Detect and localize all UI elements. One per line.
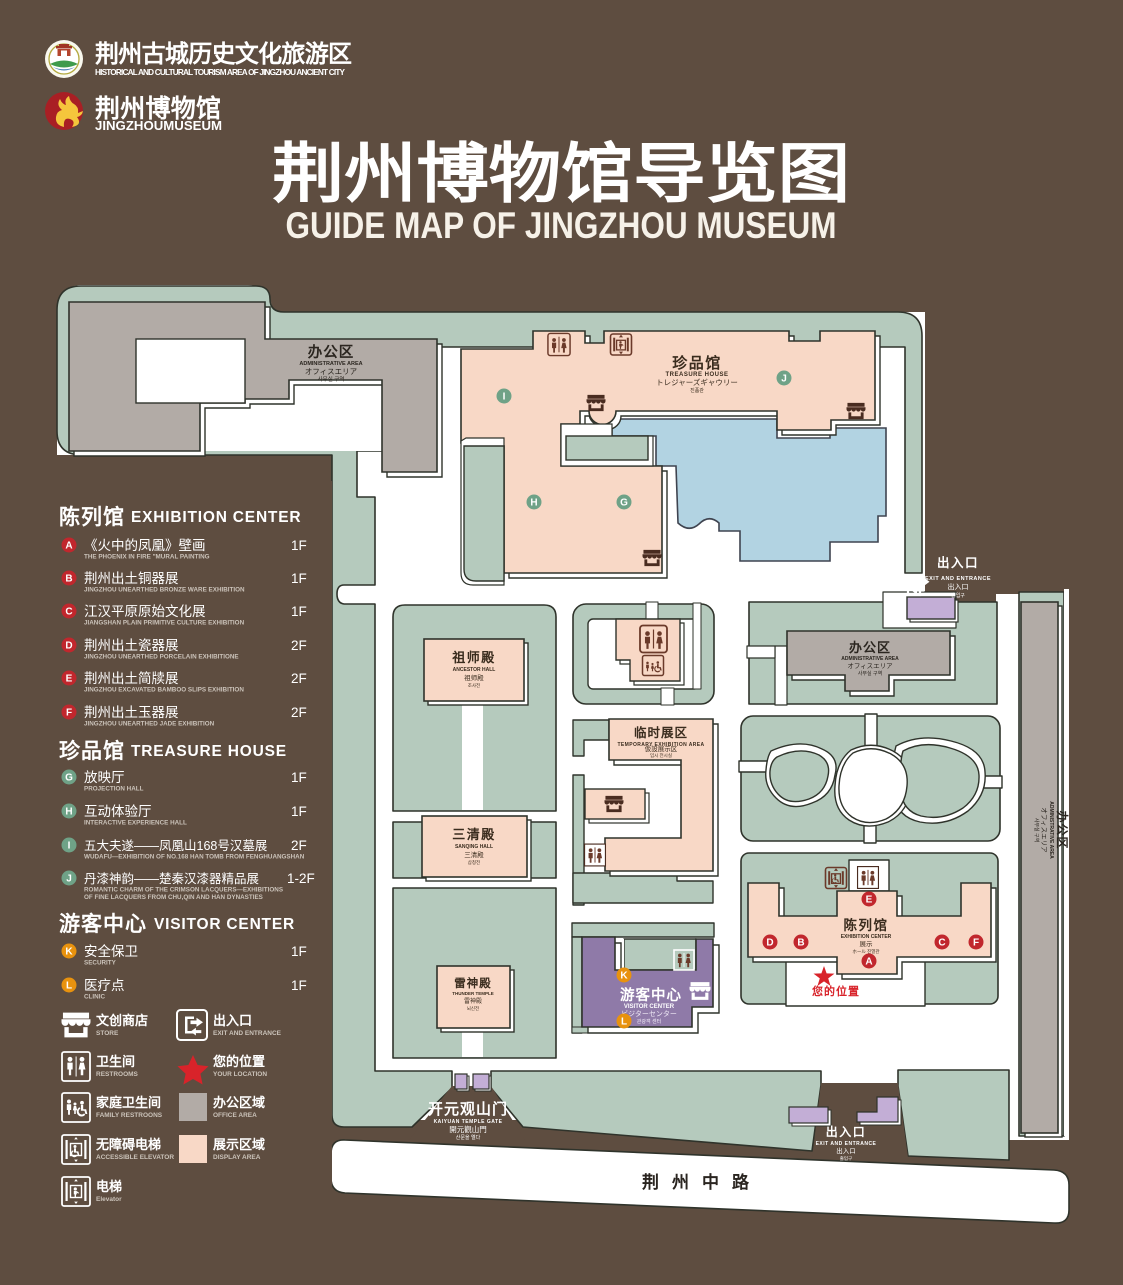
svg-text:2F: 2F: [291, 671, 307, 686]
svg-text:YOUR LOCATION: YOUR LOCATION: [213, 1071, 267, 1078]
svg-text:ACCESSIBLE ELEVATOR: ACCESSIBLE ELEVATOR: [96, 1154, 174, 1161]
svg-text:出入口: 出入口: [826, 1124, 867, 1139]
svg-text:H: H: [65, 807, 72, 818]
svg-text:卫生间: 卫生间: [96, 1054, 135, 1069]
svg-text:조사전: 조사전: [468, 682, 480, 689]
svg-text:D: D: [766, 938, 773, 949]
svg-text:JINGZHOU EXCAVATED BAMBOO SLIP: JINGZHOU EXCAVATED BAMBOO SLIPS EXHIBITI…: [84, 687, 244, 694]
svg-text:J: J: [66, 874, 72, 885]
svg-text:EXIT AND ENTRANCE: EXIT AND ENTRANCE: [925, 576, 991, 582]
svg-text:B: B: [797, 938, 804, 949]
svg-text:文创商店: 文创商店: [96, 1013, 148, 1028]
svg-text:五大夫遂——凤凰山168号汉墓展: 五大夫遂——凤凰山168号汉墓展: [84, 839, 267, 853]
svg-text:荆州古城历史文化旅游区: 荆州古城历史文化旅游区: [95, 40, 352, 68]
svg-text:STORE: STORE: [96, 1030, 119, 1037]
svg-text:オフィスエリア: オフィスエリア: [1040, 807, 1048, 853]
svg-text:2F: 2F: [291, 838, 307, 853]
svg-text:1F: 1F: [291, 978, 307, 993]
svg-text:祖师殿: 祖师殿: [451, 650, 496, 665]
svg-text:电梯: 电梯: [96, 1179, 122, 1194]
svg-text:OFFICE AREA: OFFICE AREA: [213, 1112, 257, 1119]
svg-text:사무실 구역: 사무실 구역: [1033, 818, 1040, 842]
svg-text:출입구: 출입구: [840, 1155, 852, 1162]
svg-text:珍品馆: 珍品馆: [672, 354, 722, 372]
svg-text:C: C: [938, 938, 945, 949]
svg-text:雷神殿: 雷神殿: [454, 976, 492, 990]
svg-text:A: A: [65, 541, 72, 552]
svg-text:RESTROOMS: RESTROOMS: [96, 1071, 139, 1078]
svg-text:オフィスエリア: オフィスエリア: [847, 662, 893, 670]
svg-text:출입구: 출입구: [951, 592, 965, 599]
svg-text:K: K: [620, 971, 628, 982]
svg-text:VISITOR CENTER: VISITOR CENTER: [154, 916, 295, 933]
svg-text:산문을 엘다: 산문을 엘다: [456, 1134, 481, 1141]
svg-text:ADMINISTRATIVE AREA: ADMINISTRATIVE AREA: [841, 656, 899, 662]
svg-text:EXIT AND ENTRANCE: EXIT AND ENTRANCE: [213, 1030, 282, 1037]
svg-text:オフィスエリア: オフィスエリア: [305, 367, 357, 376]
svg-text:丹漆神韵——楚秦汉漆器精品展: 丹漆神韵——楚秦汉漆器精品展: [84, 871, 259, 886]
svg-text:1F: 1F: [291, 944, 307, 959]
svg-text:ADMINISTRATIVE AREA: ADMINISTRATIVE AREA: [1048, 801, 1054, 859]
svg-text:江汉平原原始文化展: 江汉平原原始文化展: [84, 604, 206, 619]
svg-text:OF FINE LACQUERS FROM CHU,QIN: OF FINE LACQUERS FROM CHU,QIN AND HAN DY…: [84, 894, 263, 901]
svg-text:2F: 2F: [291, 705, 307, 720]
svg-text:EXIT AND ENTRANCE: EXIT AND ENTRANCE: [816, 1141, 877, 1147]
svg-text:荆州中路: 荆州中路: [642, 1172, 762, 1192]
svg-text:EXHIBITION CENTER: EXHIBITION CENTER: [841, 934, 892, 940]
svg-text:SANQING HALL: SANQING HALL: [455, 844, 493, 850]
svg-text:INTERACTIVE EXPERIENCE HALL: INTERACTIVE EXPERIENCE HALL: [84, 820, 187, 827]
svg-text:临时展区: 临时展区: [634, 725, 688, 740]
svg-text:I: I: [68, 841, 71, 852]
svg-text:2F: 2F: [291, 638, 307, 653]
svg-text:三清殿: 三清殿: [464, 850, 484, 859]
svg-text:出入口: 出入口: [213, 1013, 252, 1028]
svg-text:《火中的凤凰》壁画: 《火中的凤凰》壁画: [84, 538, 206, 553]
svg-text:三清殿: 三清殿: [452, 827, 496, 842]
svg-text:HISTORICAL AND CULTURAL TOURIS: HISTORICAL AND CULTURAL TOURISM AREA OF …: [95, 68, 346, 77]
svg-text:WUDAFU—EXHIBITION OF NO.168 HA: WUDAFU—EXHIBITION OF NO.168 HAN TOMB FRO…: [84, 854, 305, 861]
svg-text:L: L: [621, 1017, 627, 1028]
svg-text:荆州出土玉器展: 荆州出土玉器展: [84, 705, 179, 720]
svg-text:A: A: [865, 957, 872, 968]
svg-text:展示区域: 展示区域: [213, 1137, 265, 1152]
svg-text:互动体验厅: 互动体验厅: [84, 804, 152, 819]
svg-text:1F: 1F: [291, 804, 307, 819]
svg-text:1F: 1F: [291, 604, 307, 619]
svg-text:游客中心: 游客中心: [59, 912, 147, 936]
svg-text:E: E: [866, 895, 873, 906]
svg-text:C: C: [65, 607, 72, 618]
svg-text:JINGZHOU UNEARTHED JADE EXHIBI: JINGZHOU UNEARTHED JADE EXHIBITION: [84, 721, 215, 728]
svg-text:1F: 1F: [291, 571, 307, 586]
svg-text:DISPLAY AREA: DISPLAY AREA: [213, 1154, 261, 1161]
svg-text:游客中心: 游客中心: [620, 986, 682, 1004]
svg-text:삼청전: 삼청전: [468, 859, 480, 865]
svg-text:荆州出土简牍展: 荆州出土简牍展: [84, 670, 179, 686]
svg-text:出入口: 出入口: [836, 1146, 856, 1155]
svg-text:荆州出土铜器展: 荆州出土铜器展: [84, 571, 179, 586]
svg-text:E: E: [66, 674, 73, 685]
svg-text:开元观山门: 开元观山门: [428, 1100, 508, 1118]
svg-text:トレジャーズギャウリー: トレジャーズギャウリー: [656, 377, 738, 387]
svg-text:放映厅: 放映厅: [84, 770, 125, 785]
svg-text:VISITOR CENTER: VISITOR CENTER: [624, 1004, 675, 1010]
svg-text:办公区: 办公区: [849, 640, 891, 655]
svg-text:ホール 진열관: ホール 진열관: [852, 948, 879, 954]
svg-text:H: H: [530, 498, 537, 509]
svg-text:F: F: [973, 938, 979, 949]
svg-text:CLINIC: CLINIC: [84, 994, 105, 1001]
svg-text:JINGZHOU UNEARTHED BRONZE WARE: JINGZHOU UNEARTHED BRONZE WARE EXHIBITIO…: [84, 587, 245, 594]
svg-text:1-2F: 1-2F: [287, 871, 315, 886]
svg-text:사무실 구역: 사무실 구역: [318, 375, 345, 383]
svg-text:展示: 展示: [860, 940, 874, 948]
svg-text:祖师殿: 祖师殿: [464, 673, 484, 682]
svg-text:您的位置: 您的位置: [812, 984, 860, 998]
svg-text:B: B: [65, 574, 72, 585]
svg-text:无障碍电梯: 无障碍电梯: [95, 1137, 161, 1152]
svg-text:F: F: [66, 708, 72, 719]
svg-text:SECURITY: SECURITY: [84, 960, 117, 967]
svg-text:1F: 1F: [291, 770, 307, 785]
svg-text:GUIDE MAP OF JINGZHOU MUSEUM: GUIDE MAP OF JINGZHOU MUSEUM: [286, 205, 837, 246]
svg-text:G: G: [65, 773, 73, 784]
svg-text:관광객 센터: 관광객 센터: [637, 1018, 661, 1025]
svg-text:出入口: 出入口: [948, 582, 969, 591]
svg-text:荆州博物馆导览图: 荆州博物馆导览图: [272, 137, 850, 210]
svg-text:Elevator: Elevator: [96, 1196, 122, 1203]
svg-text:임시 전시실: 임시 전시실: [650, 752, 672, 758]
svg-text:办公区: 办公区: [308, 343, 355, 361]
svg-text:出入口: 出入口: [937, 555, 979, 570]
svg-text:TREASURE HOUSE: TREASURE HOUSE: [131, 743, 287, 760]
svg-text:ANCESTOR HALL: ANCESTOR HALL: [453, 667, 496, 673]
svg-text:您的位置: 您的位置: [213, 1054, 265, 1069]
svg-text:K: K: [65, 947, 73, 958]
svg-text:I: I: [503, 392, 506, 403]
svg-text:陈列馆: 陈列馆: [59, 505, 125, 529]
svg-text:JINGZHOUMUSEUM: JINGZHOUMUSEUM: [95, 119, 222, 133]
svg-text:THUNDER TEMPLE: THUNDER TEMPLE: [452, 991, 494, 996]
svg-text:1F: 1F: [291, 538, 307, 553]
svg-text:医疗点: 医疗点: [84, 978, 125, 993]
svg-text:PROJECTION HALL: PROJECTION HALL: [84, 786, 144, 793]
svg-text:珍品馆: 珍品馆: [59, 739, 125, 763]
svg-text:J: J: [781, 374, 787, 385]
svg-text:G: G: [620, 498, 628, 509]
svg-text:진품관: 진품관: [690, 387, 704, 394]
svg-text:사무실 구역: 사무실 구역: [858, 670, 882, 677]
svg-text:D: D: [65, 641, 72, 652]
svg-text:뇌신전: 뇌신전: [467, 1005, 479, 1012]
svg-text:荆州出土瓷器展: 荆州出土瓷器展: [84, 638, 179, 653]
svg-text:陈列馆: 陈列馆: [844, 917, 889, 933]
svg-text:雷神殿: 雷神殿: [464, 997, 482, 1005]
svg-text:办公区域: 办公区域: [213, 1095, 265, 1110]
svg-text:JINGZHOU UNEARTHED PORCELAIN E: JINGZHOU UNEARTHED PORCELAIN EXHIBITIONE: [84, 654, 239, 661]
svg-text:L: L: [66, 981, 72, 992]
svg-text:FAMILY RESTROONS: FAMILY RESTROONS: [96, 1112, 163, 1119]
svg-text:THE PHOENIX IN FIRE "MURAL PAI: THE PHOENIX IN FIRE "MURAL PAINTING: [84, 554, 210, 561]
svg-text:ROMANTIC CHARM OF THE CRIMSON: ROMANTIC CHARM OF THE CRIMSON LACQUERS—E…: [84, 887, 283, 894]
svg-text:EXHIBITION CENTER: EXHIBITION CENTER: [131, 509, 301, 526]
svg-text:JIANGSHAN PLAIN PRIMITIVE CULT: JIANGSHAN PLAIN PRIMITIVE CULTURE EXHIBI…: [84, 620, 245, 627]
svg-text:開元觀山門: 開元觀山門: [449, 1124, 487, 1134]
svg-text:安全保卫: 安全保卫: [84, 943, 138, 959]
svg-text:仮設展示区: 仮設展示区: [645, 744, 678, 753]
svg-text:办公区: 办公区: [1055, 810, 1070, 849]
svg-text:家庭卫生间: 家庭卫生间: [96, 1095, 161, 1110]
